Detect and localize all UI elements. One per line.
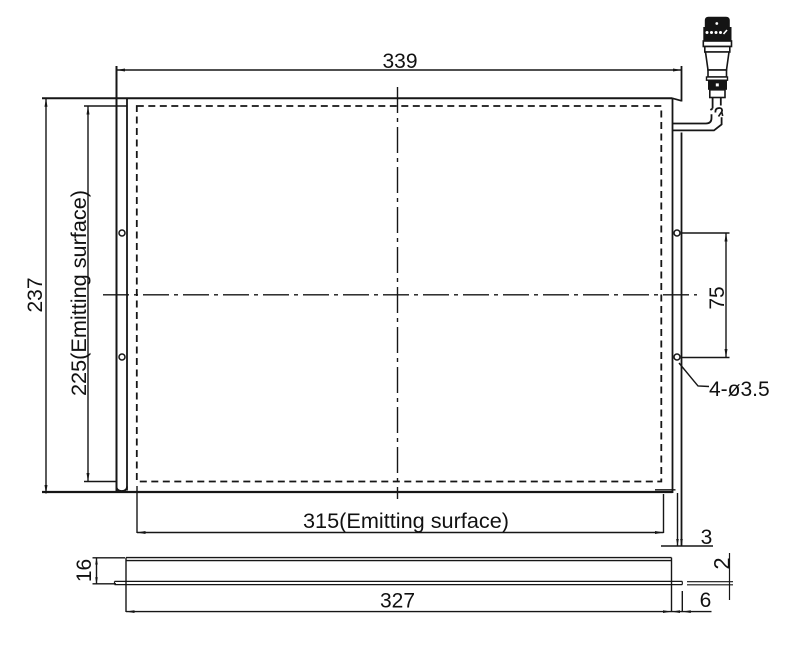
svg-text:3: 3: [701, 526, 713, 549]
svg-text:327: 327: [380, 590, 415, 613]
svg-text:339: 339: [382, 50, 417, 73]
svg-text:237: 237: [24, 277, 47, 312]
svg-text:2: 2: [710, 557, 735, 569]
svg-text:16: 16: [73, 559, 96, 582]
svg-text:6: 6: [700, 589, 712, 612]
svg-text:4-ø3.5: 4-ø3.5: [709, 378, 770, 401]
svg-text:75: 75: [706, 286, 729, 309]
svg-text:315(Emitting surface): 315(Emitting surface): [303, 510, 509, 533]
svg-text:225(Emitting surface): 225(Emitting surface): [68, 190, 91, 396]
